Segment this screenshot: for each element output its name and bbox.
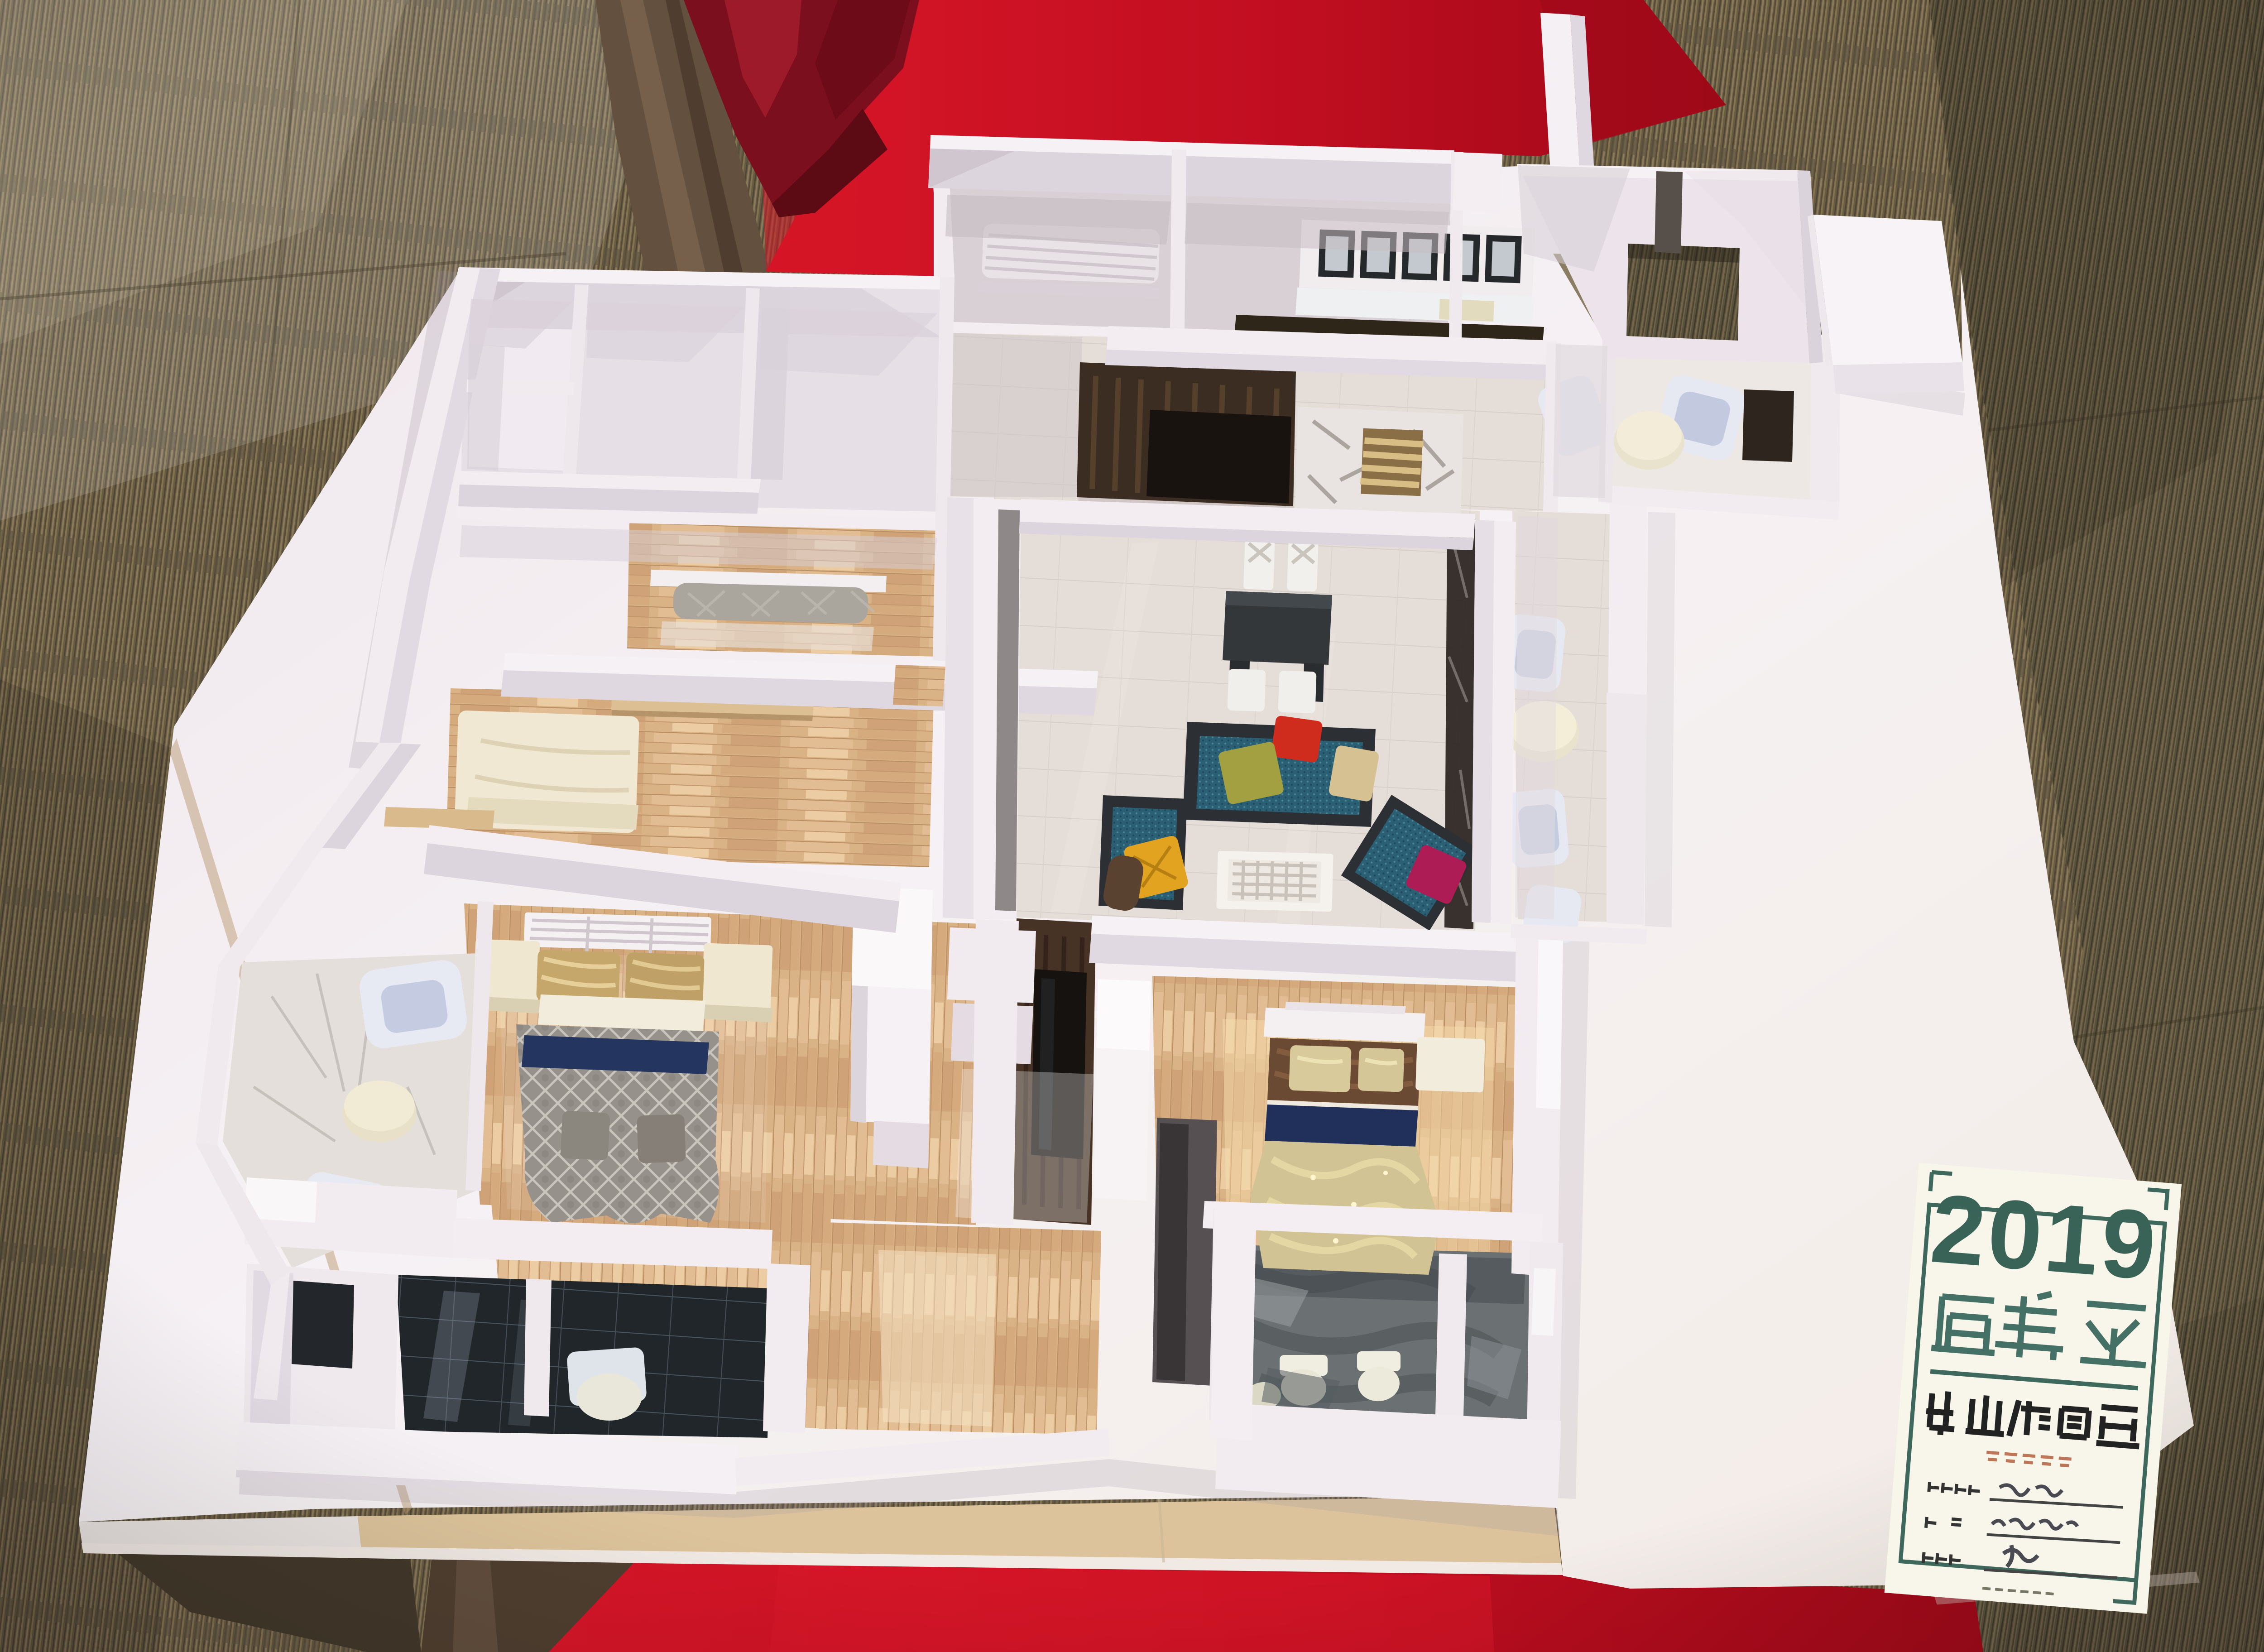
svg-text:2019: 2019 <box>1927 1173 2163 1301</box>
